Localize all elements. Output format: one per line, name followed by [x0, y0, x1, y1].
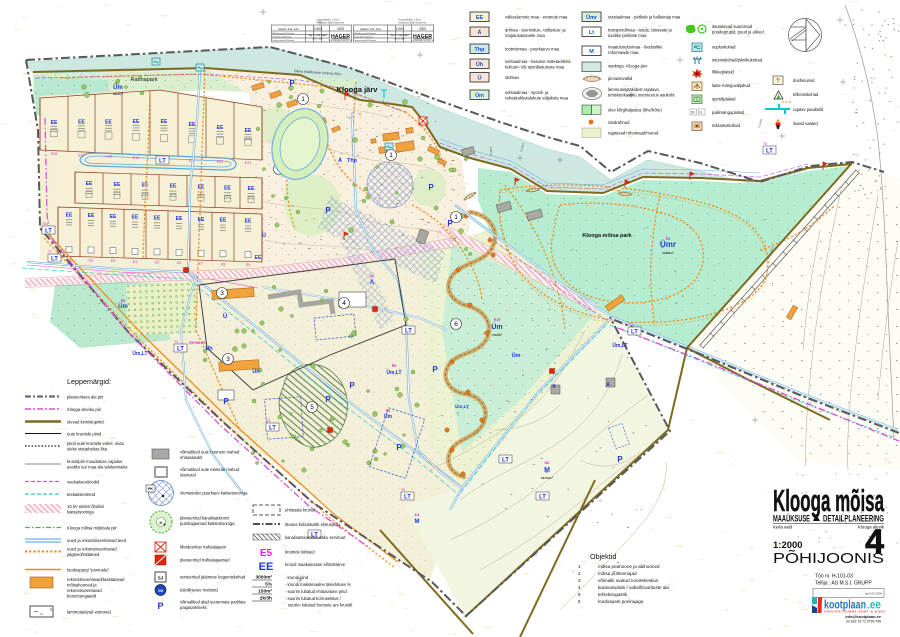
- svg-text:4: 4: [342, 300, 346, 307]
- svg-text:3: 3: [220, 290, 224, 297]
- svg-text:EE: EE: [133, 119, 140, 125]
- svg-text:2003: 2003: [419, 27, 426, 31]
- svg-text:tehiskünkastiku orienteeruv as: tehiskünkastiku orienteeruv asukoht: [608, 93, 675, 98]
- svg-text:P: P: [223, 397, 229, 406]
- svg-text:Thp: Thp: [474, 47, 485, 53]
- svg-text:laste mänguväljakud: laste mänguväljakud: [712, 83, 751, 88]
- svg-text:513800: 513800: [489, 146, 493, 156]
- svg-text:EE: EE: [78, 120, 85, 126]
- svg-text:puudegrupid, puud ja alleed: puudegrupid, puud ja alleed: [712, 30, 764, 35]
- svg-text:karavaniplats / vabaõhuüritust: karavaniplats / vabaõhuürituste ala: [598, 585, 669, 590]
- svg-text:T9: T9: [266, 419, 270, 423]
- svg-text:sotsiaalmaa - kasumit mittetao: sotsiaalmaa - kasumit mittetaotleva: [505, 59, 571, 64]
- svg-text:väikeelamute maa - eramute maa: väikeelamute maa - eramute maa: [505, 15, 568, 20]
- svg-text:T6: T6: [763, 142, 767, 146]
- svg-text:K: K: [160, 520, 163, 525]
- svg-text:EE: EE: [161, 119, 168, 125]
- svg-text:DETAILPLANEERING: DETAILPLANEERING: [823, 514, 884, 524]
- svg-text:1:500: 1:500: [314, 27, 322, 31]
- svg-text:P: P: [349, 381, 355, 390]
- svg-text:olemasolev puurkaev kaitsetsoo: olemasolev puurkaev kaitsetsooniga: [180, 491, 248, 496]
- svg-text:oleks otstarbekas liita: oleks otstarbekas liita: [67, 447, 108, 452]
- svg-text:Tellija : AS M.S.I. GRUPP: Tellija : AS M.S.I. GRUPP: [815, 581, 872, 587]
- svg-text:3000m²: 3000m²: [255, 575, 272, 581]
- svg-text:6: 6: [578, 599, 581, 604]
- svg-text:rajatavad rohumaad/murud: rajatavad rohumaad/murud: [608, 131, 659, 136]
- svg-text:transpordimaa - teede, tänavat: transpordimaa - teede, tänavate ja: [608, 28, 672, 33]
- svg-text:- suurim lubatud ehitusalune p: - suurim lubatud ehitusalune pind: [285, 589, 347, 594]
- svg-text:Rannapark: Rannapark: [131, 77, 158, 83]
- svg-text:uued ja rekonstrueeritavad tee: uued ja rekonstrueeritavad teed: [67, 538, 127, 543]
- svg-text:1: 1: [454, 214, 458, 221]
- svg-text:betoonangaarid: betoonangaarid: [67, 594, 97, 599]
- svg-text:3092m²: 3092m²: [113, 92, 123, 96]
- svg-text:M 1:1 500: M 1:1 500: [313, 39, 324, 41]
- svg-text:likvideeritav trafoalajaam: likvideeritav trafoalajaam: [180, 545, 227, 550]
- svg-text:Üm,LT: Üm,LT: [132, 350, 147, 357]
- svg-text:M2: M2: [545, 461, 550, 465]
- svg-text:EE: EE: [476, 15, 484, 21]
- svg-text:E6: E6: [177, 261, 181, 265]
- svg-text:2k/3h: 2k/3h: [260, 596, 272, 602]
- svg-text:Üh: Üh: [252, 368, 260, 375]
- svg-text:avaliku tee maa-ala tekitamise: avaliku tee maa-ala tekitamiseks: [67, 465, 128, 470]
- svg-text:sorteeritud jäätmete kogumisko: sorteeritud jäätmete kogumiskohad: [180, 575, 246, 580]
- svg-text:tootmismaa - puurkaevu maa: tootmismaa - puurkaevu maa: [505, 47, 560, 52]
- svg-text:4: 4: [578, 585, 581, 590]
- svg-text:P: P: [617, 455, 623, 464]
- svg-text:Kj: Kj: [700, 110, 703, 114]
- svg-text:planeeritud trafoalajaamad: planeeritud trafoalajaamad: [180, 558, 230, 563]
- svg-text:Keila vald: Keila vald: [773, 525, 793, 530]
- svg-text:T02: T02: [628, 323, 634, 327]
- svg-text:Tee nr. 11a plaan: Tee nr. 11a plaan: [390, 34, 409, 37]
- svg-text:sotsiaalmaa - spordi- ja: sotsiaalmaa - spordi- ja: [505, 90, 549, 95]
- svg-text:EE: EE: [114, 182, 121, 188]
- svg-text:LT: LT: [405, 329, 412, 335]
- svg-text:A/1: A/1: [414, 513, 420, 517]
- svg-text:M: M: [589, 49, 594, 55]
- svg-text:lammutatavad varemed: lammutatavad varemed: [67, 610, 111, 615]
- svg-text:PÕHIJOONIS: PÕHIJOONIS: [773, 550, 884, 567]
- svg-text:veekaitsevööndid: veekaitsevööndid: [67, 480, 100, 485]
- svg-text:avalike parklate maa: avalike parklate maa: [608, 33, 647, 38]
- svg-text:kanalisatsioonitorustiku servi: kanalisatsioonitorustiku servituut: [285, 535, 346, 540]
- svg-text:E23: E23: [245, 161, 251, 165]
- svg-text:üldmaa: üldmaa: [505, 75, 519, 80]
- svg-text:pumbajaamad kaitsetsooniga: pumbajaamad kaitsetsooniga: [180, 521, 235, 526]
- svg-text:E18: E18: [105, 155, 111, 159]
- svg-text:R9: R9: [392, 364, 397, 368]
- svg-text:LT: LT: [269, 426, 276, 432]
- svg-text:EE: EE: [198, 217, 205, 223]
- svg-text:uute kruntide piirid: uute kruntide piirid: [67, 432, 102, 437]
- svg-text:olevad kinnistupiirid: olevad kinnistupiirid: [67, 420, 104, 425]
- svg-text:A: A: [370, 280, 375, 286]
- svg-text:63713m²: 63713m²: [541, 476, 553, 480]
- svg-text:E2: E2: [89, 258, 93, 262]
- svg-text:Ä: Ä: [338, 157, 342, 164]
- svg-text:1: 1: [578, 564, 581, 569]
- svg-text:R10: R10: [494, 318, 500, 322]
- svg-text:Klooga järv: Klooga järv: [337, 85, 379, 94]
- svg-text:R8: R8: [386, 409, 390, 413]
- svg-text:mk 9-07 2004: mk 9-07 2004: [865, 592, 883, 596]
- svg-text:kaitsetsooniga: kaitsetsooniga: [67, 510, 94, 515]
- svg-text:paigutamiseks: paigutamiseks: [180, 605, 207, 610]
- svg-text:2003: 2003: [337, 27, 344, 31]
- svg-text:EE: EE: [255, 255, 262, 261]
- svg-text:rekonstrueeritavad/taastatavad: rekonstrueeritavad/taastatavad: [67, 577, 125, 582]
- svg-text:krundi maakasutuse sihtotstarv: krundi maakasutuse sihtotstarve: [285, 562, 346, 567]
- svg-text:E16: E16: [51, 152, 57, 156]
- svg-text:jalgteed/rattateed: jalgteed/rattateed: [66, 552, 100, 557]
- svg-text:Üm: Üm: [113, 84, 123, 91]
- svg-text:- krundi maksimaalne täisehitu: - krundi maksimaalne täisehituse %: [285, 582, 351, 587]
- svg-text:Ümr: Ümr: [660, 240, 676, 249]
- svg-text:telkimiskohad: telkimiskohad: [793, 92, 819, 97]
- svg-text:EE: EE: [51, 120, 58, 126]
- svg-text:Ä: Ä: [478, 29, 482, 36]
- svg-text:R1: R1: [666, 237, 671, 241]
- svg-text:pallimänguplatsid: pallimänguplatsid: [712, 110, 745, 115]
- svg-text:E7: E7: [199, 262, 203, 266]
- svg-text:EE: EE: [245, 219, 252, 225]
- svg-text:T7: T7: [48, 250, 52, 254]
- svg-text:P: P: [325, 395, 331, 404]
- svg-text:istumiskohad/piknikukohad: istumiskohad/piknikukohad: [712, 58, 763, 63]
- svg-text:E5: E5: [155, 260, 159, 264]
- svg-text:Üh: Üh: [476, 61, 484, 68]
- svg-text:- krundi pind: - krundi pind: [285, 575, 309, 580]
- svg-text:Üm: Üm: [491, 322, 502, 331]
- svg-text:LT: LT: [177, 347, 184, 353]
- svg-text:planeeritava ala piir: planeeritava ala piir: [67, 395, 104, 400]
- svg-text:rahvakokkutulekute väljakute m: rahvakokkutulekute väljakute maa: [505, 96, 569, 101]
- svg-text:EE: EE: [176, 216, 183, 222]
- svg-text:Üm: Üm: [475, 92, 484, 99]
- svg-text:EE: EE: [217, 125, 224, 131]
- svg-text:P: P: [289, 79, 295, 88]
- svg-text:150m²: 150m²: [258, 589, 272, 595]
- svg-text:tuletõrjevee mahutid: tuletõrjevee mahutid: [180, 588, 218, 593]
- svg-text:A: A: [606, 382, 610, 388]
- svg-text:EE: EE: [220, 218, 227, 224]
- svg-text:suurim lubatud hoonete arv kru: suurim lubatud hoonete arv krundil: [288, 603, 352, 608]
- svg-text:Üm,LT: Üm,LT: [386, 369, 401, 376]
- svg-text:Joonestanud B.Somov: Joonestanud B.Somov: [272, 39, 295, 42]
- svg-text:EE: EE: [154, 215, 161, 221]
- svg-text:dushinumid: dushinumid: [793, 78, 815, 83]
- svg-text:LT: LT: [159, 159, 166, 165]
- svg-text:Ü: Ü: [478, 74, 482, 81]
- svg-text:planeeritud kanalisatsiooni: planeeritud kanalisatsiooni: [180, 516, 229, 521]
- svg-text:P: P: [396, 443, 402, 452]
- svg-text:info@kootplaan.ee: info@kootplaan.ee: [845, 614, 881, 619]
- svg-text:EE: EE: [142, 183, 149, 189]
- svg-text:EE: EE: [86, 181, 93, 187]
- svg-text:katastri. krta. tehn: katastri. krta. tehn: [278, 27, 299, 31]
- svg-text:T3: T3: [174, 340, 178, 344]
- svg-text:olev kõrghaljastus (tihe/hõre): olev kõrghaljastus (tihe/hõre): [608, 108, 662, 113]
- svg-text:Thp: Thp: [347, 158, 358, 164]
- svg-text:Klooga mõisa park: Klooga mõisa park: [582, 233, 632, 239]
- svg-text:Kontrollinud A.Kask: Kontrollinud A.Kask: [354, 36, 374, 39]
- svg-text:6: 6: [454, 321, 458, 328]
- svg-text:EE: EE: [224, 185, 231, 191]
- svg-text:E17: E17: [78, 153, 84, 157]
- svg-text:EE: EE: [110, 214, 117, 220]
- svg-text:LT: LT: [45, 229, 52, 235]
- svg-text:- suurim lubatud korruselisus: - suurim lubatud korruselisus /: [285, 596, 342, 601]
- svg-text:katastri. krta. tehn: katastri. krta. tehn: [360, 27, 381, 31]
- svg-text:MAAÜKSUSE: MAAÜKSUSE: [773, 514, 810, 524]
- svg-text:võimalikud uute elamute mahud: võimalikud uute elamute mahud: [180, 467, 240, 472]
- svg-text:elamutel: elamutel: [180, 473, 196, 478]
- svg-text:rohumaade maa: rohumaade maa: [608, 50, 639, 55]
- svg-text:LT: LT: [539, 495, 546, 501]
- svg-text:1:500: 1:500: [396, 27, 404, 31]
- svg-text:E9: E9: [246, 263, 250, 267]
- svg-text:M 1:1 500: M 1:1 500: [395, 39, 406, 41]
- svg-text:PK: PK: [148, 487, 154, 491]
- svg-text:VM: VM: [158, 589, 163, 593]
- svg-text:Kõrgused: Balti süsteemis: Kõrgused: Balti süsteemis: [399, 22, 427, 25]
- svg-text:spordiplatsid: spordiplatsid: [712, 97, 736, 102]
- svg-text:Üm,LT: Üm,LT: [612, 342, 627, 349]
- svg-text:LT: LT: [502, 458, 509, 464]
- svg-text:5: 5: [578, 592, 581, 597]
- svg-text:rajatav paadisild: rajatav paadisild: [793, 107, 824, 112]
- svg-text:maatulundusmaa - looduslike: maatulundusmaa - looduslike: [608, 45, 663, 50]
- svg-text:Üm,LT: Üm,LT: [455, 403, 469, 409]
- svg-text:kruntide tähised: kruntide tähised: [285, 550, 315, 555]
- svg-text:pinnasevallid: pinnasevallid: [608, 76, 633, 81]
- svg-text:majutusasutuste maa: majutusasutuste maa: [505, 33, 545, 38]
- svg-text:R3: R3: [121, 299, 126, 303]
- svg-text:LT: LT: [631, 330, 638, 336]
- svg-text:EE: EE: [88, 213, 95, 219]
- svg-text:looduspargi "ponirada": looduspargi "ponirada": [67, 568, 110, 573]
- svg-text:Klooga mõisa miljööala piir: Klooga mõisa miljööala piir: [67, 526, 117, 531]
- svg-text:P: P: [432, 365, 438, 374]
- svg-text:EE: EE: [132, 215, 139, 221]
- svg-text:Ü: Ü: [262, 232, 266, 239]
- svg-text:LT: LT: [404, 495, 411, 501]
- svg-text:Klooga aleviku piir: Klooga aleviku piir: [67, 407, 102, 412]
- svg-text:kultuuri- või spordiasutuste m: kultuuri- või spordiasutuste maa: [505, 65, 565, 70]
- svg-text:Ü: Ü: [223, 313, 227, 320]
- svg-text:E8: E8: [221, 262, 225, 266]
- svg-text:E19: E19: [133, 156, 139, 160]
- svg-text:Lt: Lt: [589, 30, 594, 36]
- svg-text:M: M: [415, 519, 420, 525]
- svg-text:Üh: Üh: [205, 345, 213, 352]
- svg-text:LT: LT: [766, 149, 773, 155]
- svg-text:Objektid: Objektid: [590, 552, 616, 561]
- svg-text:E22: E22: [217, 160, 223, 164]
- svg-text:A2: A2: [370, 274, 375, 278]
- svg-text:31880m²: 31880m²: [662, 251, 674, 255]
- svg-text:P: P: [428, 183, 434, 192]
- svg-text:tel:662 15 72 5769 795: tel:662 15 72 5769 795: [846, 620, 881, 624]
- svg-text:rändrahnud: rändrahnud: [608, 120, 630, 125]
- svg-text:istutatavad suuremad: istutatavad suuremad: [712, 24, 753, 29]
- svg-text:supluskohad: supluskohad: [712, 45, 736, 50]
- svg-text:3: 3: [578, 578, 581, 583]
- svg-text:mõisa peahoone ja abihooned: mõisa peahoone ja abihooned: [598, 564, 660, 569]
- svg-text:tänava kohustuslik ehitusjoon: tänava kohustuslik ehitusjoon: [285, 522, 340, 527]
- svg-text:EE: EE: [245, 128, 252, 134]
- svg-text:võimalikud alad suuremate park: võimalikud alad suuremate parklate: [180, 600, 247, 605]
- svg-text:lõkkeplatsid: lõkkeplatsid: [712, 70, 735, 75]
- svg-text:ehitusaladel: ehitusaladel: [180, 455, 202, 460]
- svg-text:ilusad vaated: ilusad vaated: [793, 121, 818, 126]
- svg-text:EE: EE: [66, 212, 73, 218]
- svg-text:E5: E5: [260, 548, 273, 559]
- svg-text:teekaitsevöönd: teekaitsevöönd: [67, 492, 96, 497]
- svg-text:A: A: [552, 384, 556, 390]
- svg-text:Üm: Üm: [118, 303, 128, 310]
- svg-text:looduspark ponirajaga: looduspark ponirajaga: [598, 599, 644, 604]
- svg-text:Üm: Üm: [384, 413, 393, 420]
- svg-text:mõisahooned ja: mõisahooned ja: [67, 583, 97, 588]
- svg-text:EE: EE: [259, 561, 274, 573]
- svg-text:T#1: T#1: [42, 222, 48, 226]
- svg-text:tehisküngastik: tehisküngastik: [598, 592, 628, 597]
- svg-text:1: 1: [301, 96, 305, 103]
- svg-text:lammutusjääkidest rajatava: lammutusjääkidest rajatava: [608, 87, 659, 92]
- svg-text:10 kV elektri õhuliini: 10 kV elektri õhuliini: [67, 504, 104, 509]
- svg-text:Leppemärgid:: Leppemärgid:: [67, 377, 111, 386]
- svg-text:Joonestanud B.Somov: Joonestanud B.Somov: [354, 39, 377, 42]
- svg-text:P: P: [325, 206, 331, 215]
- svg-text:3: 3: [226, 356, 230, 363]
- svg-text:P: P: [157, 601, 163, 611]
- svg-text:EE: EE: [105, 119, 112, 125]
- svg-text:1: 1: [389, 152, 393, 159]
- svg-text:EE: EE: [189, 122, 196, 128]
- svg-text:Mõõdistanud B.Somov: Mõõdistanud B.Somov: [354, 32, 377, 35]
- svg-text:uued ja rekonstrueeritavad: uued ja rekonstrueeritavad: [67, 547, 117, 552]
- svg-text:Mõõdistanud B.Somov: Mõõdistanud B.Somov: [272, 32, 295, 35]
- svg-text:T9: T9: [401, 488, 405, 492]
- svg-text:veekogu -Klooga järv: veekogu -Klooga järv: [608, 64, 648, 69]
- svg-text:2: 2: [578, 571, 581, 576]
- svg-text:EE: EE: [248, 186, 255, 192]
- svg-text:sotsiaalmaa - parkide ja kalla: sotsiaalmaa - parkide ja kallasraja maa: [608, 15, 681, 20]
- svg-text:P: P: [447, 219, 453, 228]
- svg-text:võimalikud uute hoonete mahud: võimalikud uute hoonete mahud: [180, 450, 240, 455]
- svg-text:M: M: [544, 467, 550, 474]
- svg-text:Ümr: Ümr: [586, 14, 598, 21]
- svg-text:võimalik avatud noortekeskus: võimalik avatud noortekeskus: [598, 578, 659, 583]
- svg-text:ärimaa - teenindus-, toitlustu: ärimaa - teenindus-, toitlustus- ja: [505, 28, 566, 33]
- svg-text:Tee nr. 11a plaan: Tee nr. 11a plaan: [308, 34, 327, 37]
- svg-text:7460m²: 7460m²: [492, 333, 502, 337]
- svg-text:R5+R6+R7: R5+R6+R7: [189, 341, 207, 345]
- svg-text:E3: E3: [111, 259, 115, 263]
- svg-text:Dh: Dh: [691, 110, 695, 114]
- svg-text:ehitusala krundil: ehitusala krundil: [285, 508, 315, 513]
- svg-text:rekonstrueeritavad: rekonstrueeritavad: [67, 588, 102, 593]
- svg-text:LT: LT: [51, 257, 58, 263]
- svg-text:SJ: SJ: [158, 576, 164, 581]
- svg-text:5: 5: [310, 404, 314, 411]
- svg-text:EE: EE: [170, 184, 177, 190]
- svg-text:toitlustuskohad: toitlustuskohad: [712, 123, 741, 128]
- svg-text:E4: E4: [133, 260, 137, 264]
- svg-text:Töö nr. H-101-03: Töö nr. H-101-03: [815, 574, 853, 580]
- svg-text:piirid uute kruntide vahel, mi: piirid uute kruntide vahel, mida: [67, 441, 124, 446]
- svg-text:OÜ REIB 6654 5654 567 99: OÜ REIB 6654 5654 567 99: [411, 39, 433, 42]
- svg-text:5%: 5%: [265, 582, 273, 588]
- svg-text:Kontrollinud A.Kask: Kontrollinud A.Kask: [272, 36, 292, 39]
- svg-text:Üm: Üm: [512, 352, 521, 359]
- svg-text:krundipiiri muudatuse vajadus: krundipiiri muudatuse vajadus: [67, 459, 122, 464]
- svg-text:mõisa puhkemajad: mõisa puhkemajad: [598, 571, 637, 576]
- svg-text:OÜ REIB 6654 5654 567 99: OÜ REIB 6654 5654 567 99: [329, 39, 351, 42]
- svg-text:ARHITEKTUURNE KONT & KONT: ARHITEKTUURNE KONT & KONT: [824, 610, 886, 614]
